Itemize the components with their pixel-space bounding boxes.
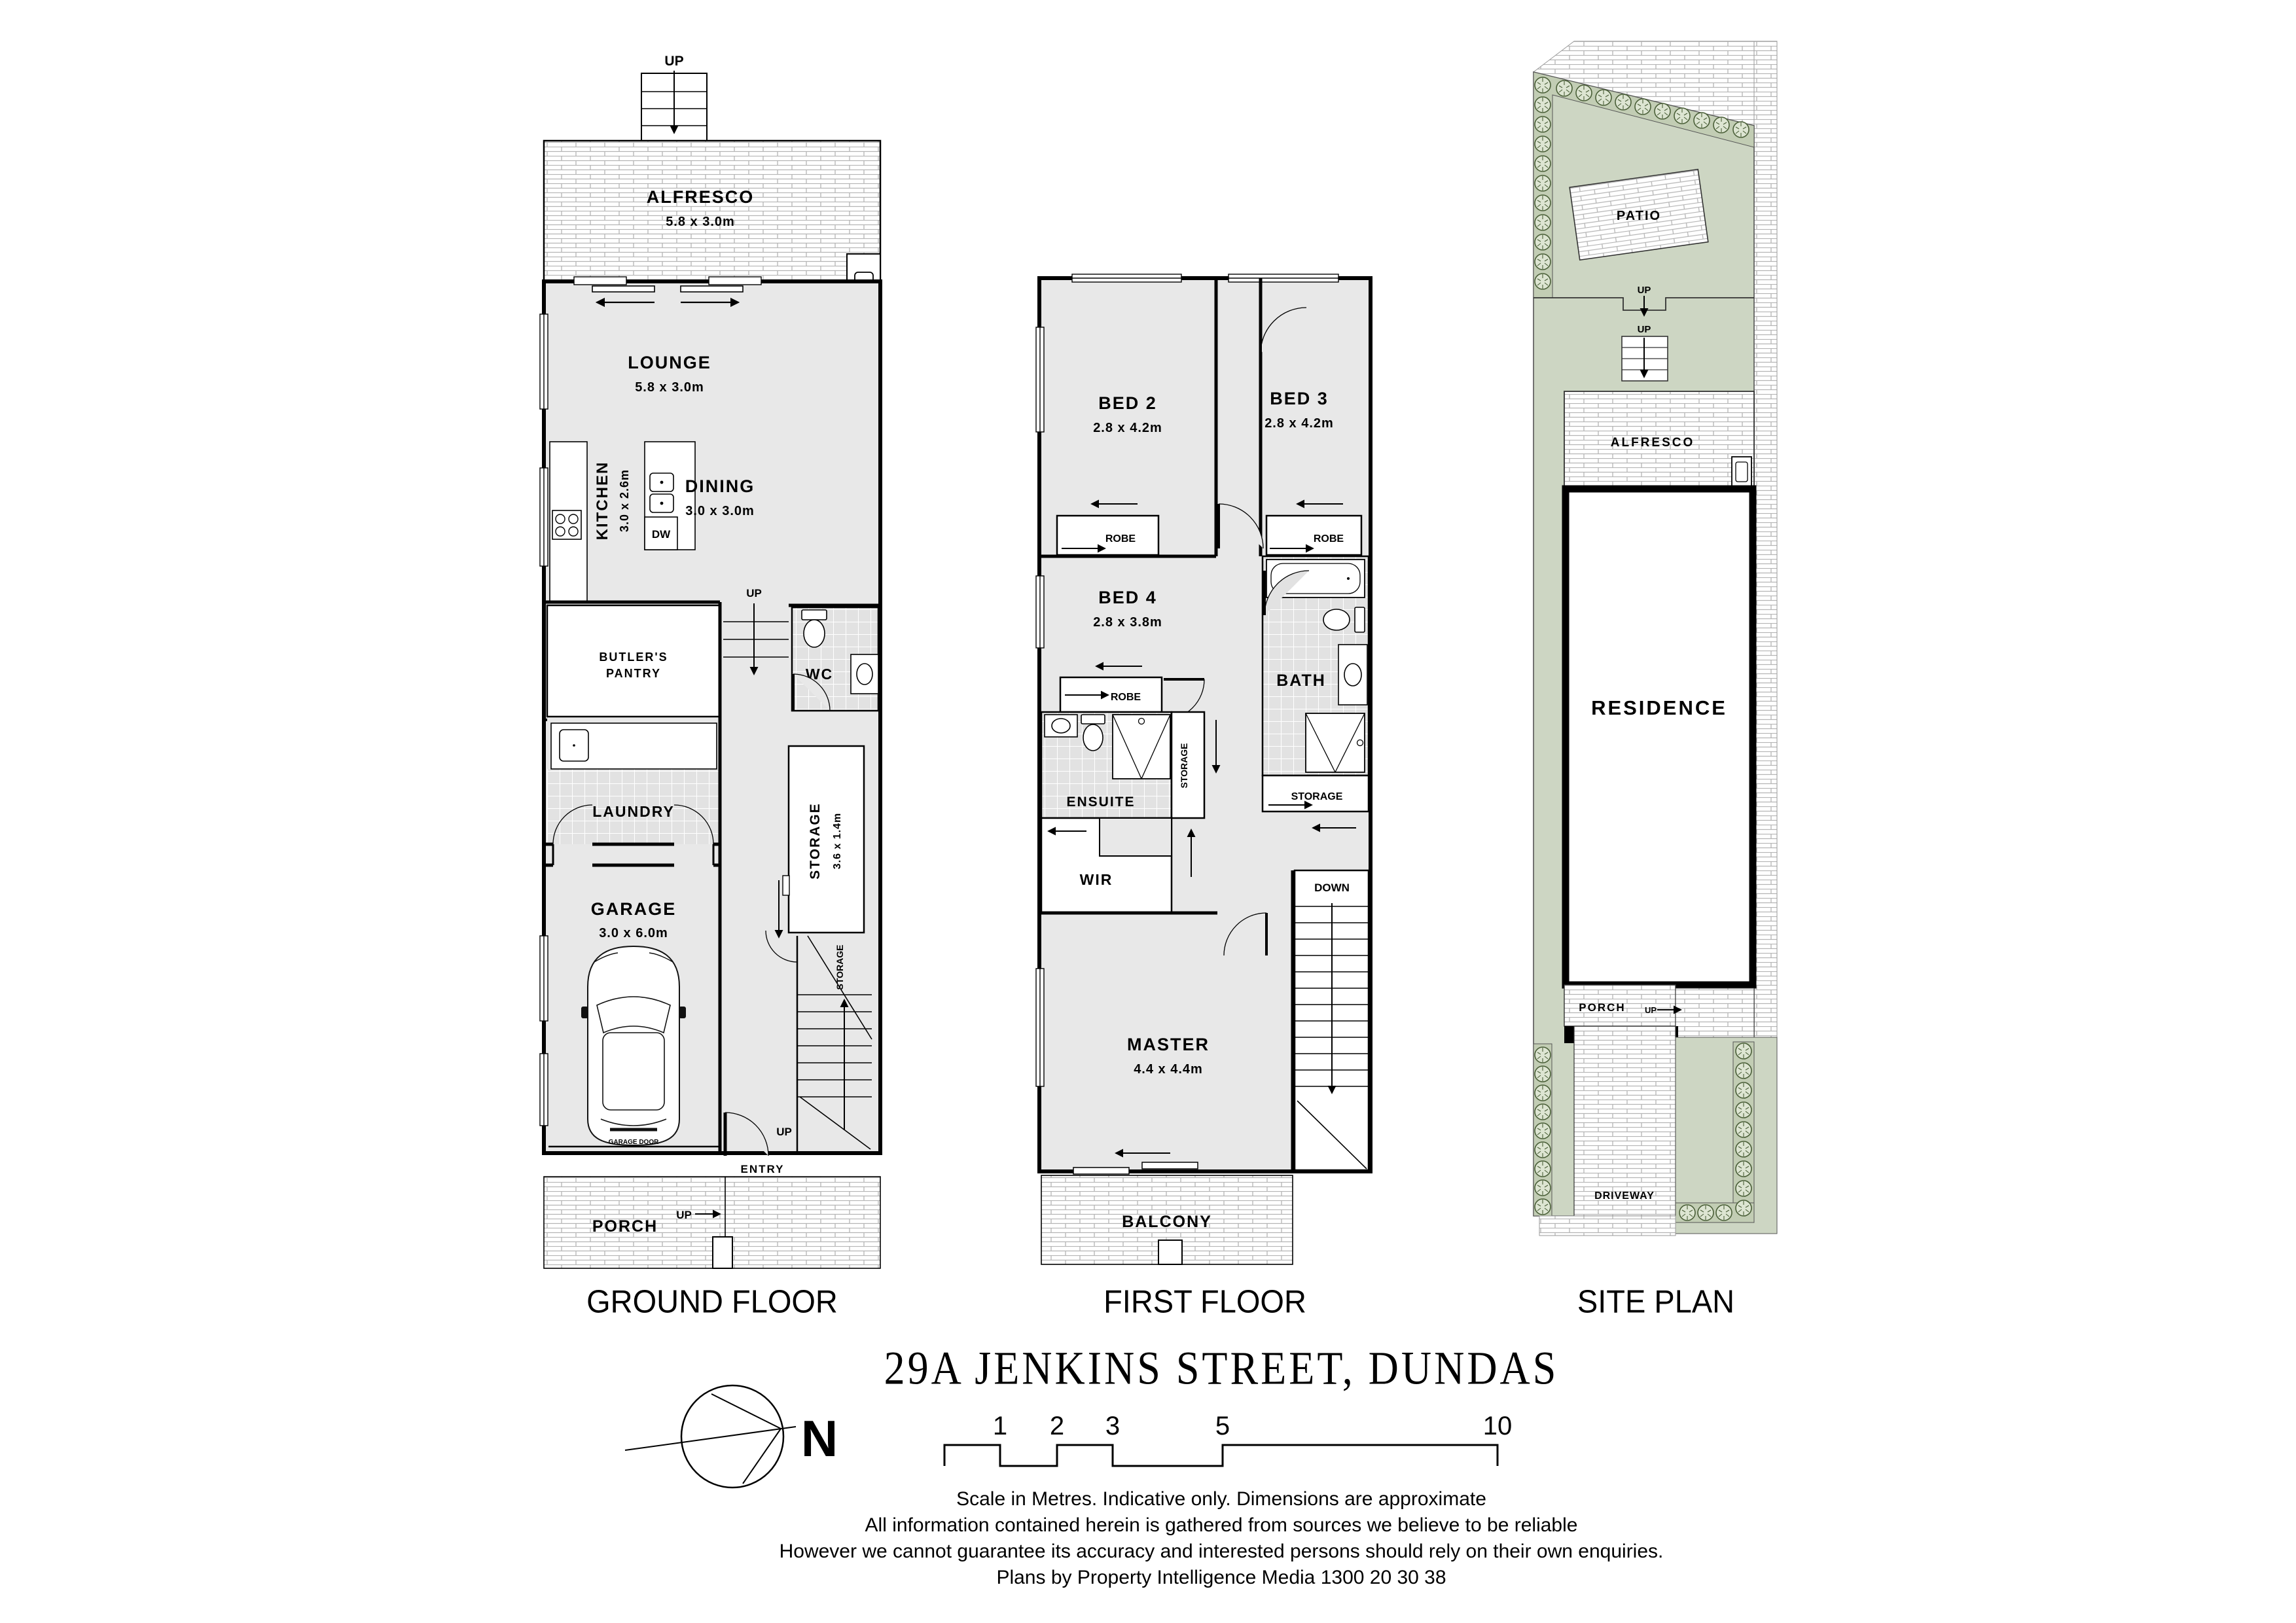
slider-panel-left (592, 286, 655, 292)
bath-label: BATH (1276, 671, 1326, 690)
site-residence (1566, 489, 1753, 985)
ensuite-basin-icon (1045, 715, 1077, 737)
bed2-dims: 2.8 x 4.2m (1093, 421, 1162, 435)
ground-lounge-label: LOUNGE (628, 353, 711, 372)
site-plan-title: SITE PLAN (1577, 1283, 1734, 1319)
compass-icon (625, 1385, 796, 1488)
bath-shower-icon (1306, 713, 1365, 772)
entry-label: ENTRY (741, 1163, 785, 1175)
bed3-robe-label: ROBE (1314, 533, 1344, 544)
laundry-room: LAUNDRY (544, 720, 720, 844)
site-fence-up: UP (1638, 285, 1651, 296)
bath-basin-icon (1338, 645, 1367, 705)
dining-label: DINING (685, 476, 755, 496)
footer-line4: Plans by Property Intelligence Media 130… (996, 1567, 1446, 1588)
dishwasher-label: DW (652, 528, 671, 541)
ground-porch-up: UP (676, 1209, 692, 1221)
bed2-label: BED 2 (1098, 393, 1157, 413)
scale-tick-1: 1 (993, 1412, 1007, 1440)
ground-alfresco-label: ALFRESCO (647, 187, 755, 207)
footer-line1: Scale in Metres. Indicative only. Dimens… (956, 1488, 1486, 1510)
scale-tick-5: 5 (1215, 1412, 1230, 1440)
master-label: MASTER (1127, 1035, 1210, 1054)
site-alfresco-label: ALFRESCO (1611, 436, 1695, 450)
ground-alfresco-area (544, 141, 880, 281)
site-residence-label: RESIDENCE (1591, 696, 1727, 719)
bed4-robe-label: ROBE (1111, 692, 1141, 703)
ground-storage-room (789, 746, 864, 933)
first-floor-title: FIRST FLOOR (1103, 1283, 1306, 1319)
hedge-shrubs-left (1535, 77, 1551, 289)
bed4-dims: 2.8 x 3.8m (1093, 615, 1162, 630)
scale-bar: 1 2 3 5 10 (944, 1412, 1512, 1466)
site-driveway-label: DRIVEWAY (1594, 1190, 1655, 1202)
balcony-post (1158, 1240, 1182, 1264)
ground-hall-up-label: UP (746, 587, 762, 599)
site-plan: PATIO UP UP ALFRESCO RESIDENCE PORCH UP … (1534, 41, 1777, 1320)
footer-line2: All information contained herein is gath… (865, 1514, 1578, 1536)
ground-porch-label: PORCH (592, 1217, 658, 1236)
garage-dims: 3.0 x 6.0m (599, 926, 668, 940)
ground-lower-stair-up: UP (776, 1126, 792, 1138)
floorplan-page: UP ALFRESCO 5.8 x 3.0m LOUNGE 5.8 x 3.0m… (0, 0, 2296, 1623)
bath-storage-label: STORAGE (1291, 791, 1343, 802)
site-front-path (1676, 988, 1754, 1037)
site-porch-up: UP (1645, 1005, 1657, 1015)
wc-basin-icon (851, 654, 878, 694)
dining-dims: 3.0 x 3.0m (685, 504, 755, 518)
garage-door-label: GARAGE DOOR (609, 1139, 659, 1146)
master-dims: 4.4 x 4.4m (1134, 1062, 1203, 1077)
ground-lounge-dims: 5.8 x 3.0m (635, 380, 704, 395)
ensuite-shower-icon (1113, 715, 1170, 779)
garage-label: GARAGE (591, 899, 677, 919)
bed3-dims: 2.8 x 4.2m (1265, 416, 1334, 431)
bath-toilet-icon (1323, 607, 1365, 632)
scale-bar-line (944, 1445, 1498, 1466)
bed3-label: BED 3 (1270, 389, 1329, 408)
wc-toilet-icon (802, 610, 827, 647)
porch-post (713, 1237, 732, 1268)
ground-floor-plan: UP ALFRESCO 5.8 x 3.0m LOUNGE 5.8 x 3.0m… (540, 54, 880, 1320)
scale-tick-10: 10 (1483, 1412, 1513, 1440)
page-title: 29A JENKINS STREET, DUNDAS (884, 1342, 1559, 1394)
ground-alfresco-dims: 5.8 x 3.0m (666, 215, 735, 229)
site-stairs-up: UP (1638, 324, 1651, 335)
balcony-label: BALCONY (1122, 1213, 1212, 1231)
footer-line3: However we cannot guarantee its accuracy… (780, 1541, 1664, 1562)
scale-tick-3: 3 (1105, 1412, 1120, 1440)
down-stairs: DOWN (1293, 870, 1369, 1170)
first-floor-plan: BED 2 2.8 x 4.2m BED 3 2.8 x 4.2m ROBE R… (1036, 274, 1371, 1320)
cooktop-icon (552, 510, 581, 539)
ground-storage-label: STORAGE (808, 802, 823, 879)
hall-storage-label: STORAGE (1179, 743, 1189, 789)
site-footpath (1539, 1216, 1676, 1236)
site-driveway (1574, 1026, 1676, 1216)
site-patio-label: PATIO (1617, 209, 1661, 223)
kitchen-dims: 3.0 x 2.6m (618, 469, 631, 532)
floorplan-drawing: UP ALFRESCO 5.8 x 3.0m LOUNGE 5.8 x 3.0m… (0, 0, 2296, 1623)
car-icon (581, 946, 686, 1145)
wir-label: WIR (1080, 871, 1113, 888)
ensuite-toilet-icon (1081, 715, 1105, 751)
butlers-pantry-label1: BUTLER'S (599, 651, 668, 664)
ground-top-up-label: UP (664, 54, 683, 69)
footer: 29A JENKINS STREET, DUNDAS N 1 2 3 5 10 … (625, 1342, 1663, 1588)
butlers-pantry-label2: PANTRY (606, 667, 661, 680)
bed4-label: BED 4 (1098, 588, 1157, 607)
bed2-robe-label: ROBE (1105, 533, 1136, 544)
ground-understair-storage-label: STORAGE (834, 945, 845, 990)
site-porch-label: PORCH (1579, 1001, 1625, 1014)
ground-floor-title: GROUND FLOOR (586, 1283, 838, 1319)
laundry-label: LAUNDRY (592, 803, 675, 820)
site-porch-post-left (1564, 1026, 1574, 1043)
scale-tick-2: 2 (1050, 1412, 1064, 1440)
ground-storage-dims: 3.6 x 1.4m (832, 813, 843, 870)
compass-north-label: N (801, 1410, 838, 1467)
hedge-shrubs-left-bottom (1535, 1047, 1551, 1215)
kitchen-label: KITCHEN (594, 461, 611, 541)
slider-panel-right (681, 286, 743, 292)
ensuite-label: ENSUITE (1066, 794, 1135, 810)
down-label: DOWN (1314, 882, 1350, 894)
